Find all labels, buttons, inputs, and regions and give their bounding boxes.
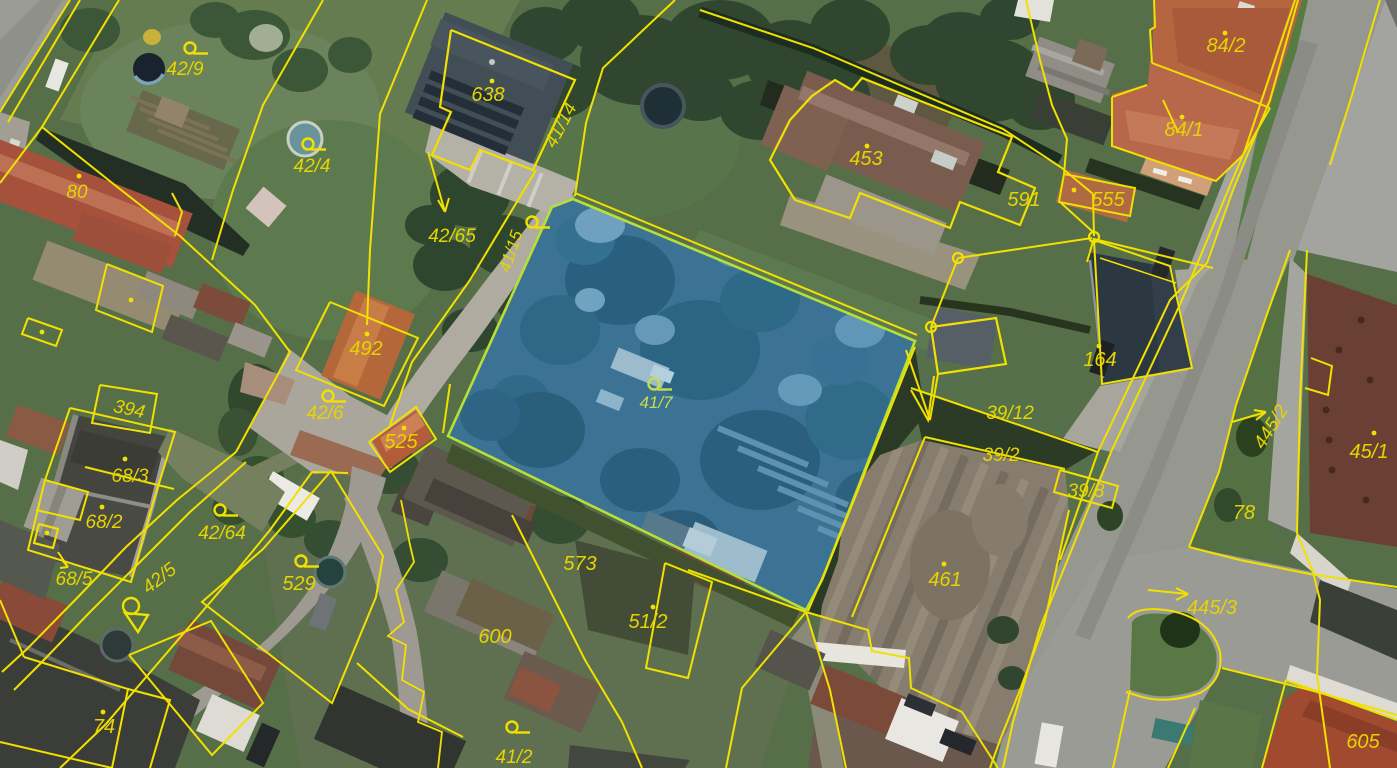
- svg-text:164: 164: [1083, 349, 1116, 371]
- svg-text:51/2: 51/2: [629, 611, 668, 633]
- svg-text:453: 453: [849, 148, 882, 170]
- svg-text:80: 80: [66, 182, 88, 203]
- svg-text:492: 492: [349, 338, 382, 360]
- svg-text:84/2: 84/2: [1207, 35, 1246, 57]
- svg-text:600: 600: [478, 626, 511, 648]
- svg-text:573: 573: [563, 553, 596, 575]
- svg-text:42/4: 42/4: [294, 156, 331, 177]
- svg-text:529: 529: [282, 573, 315, 595]
- svg-text:461: 461: [928, 569, 961, 591]
- svg-text:78: 78: [1233, 502, 1255, 524]
- svg-text:68/3: 68/3: [112, 466, 149, 487]
- svg-text:84/1: 84/1: [1165, 119, 1204, 141]
- svg-text:525: 525: [384, 431, 418, 453]
- svg-text:605: 605: [1346, 731, 1380, 753]
- svg-text:39/2: 39/2: [983, 445, 1020, 466]
- svg-text:74: 74: [93, 716, 115, 738]
- svg-text:42/9: 42/9: [167, 59, 204, 80]
- svg-text:68/2: 68/2: [86, 512, 123, 533]
- svg-text:41/2: 41/2: [496, 747, 533, 768]
- svg-text:445/3: 445/3: [1187, 597, 1237, 619]
- svg-text:638: 638: [471, 84, 504, 106]
- svg-text:591: 591: [1007, 189, 1040, 211]
- svg-text:42/6: 42/6: [307, 403, 344, 424]
- svg-text:42/65: 42/65: [428, 226, 476, 247]
- svg-text:41/7: 41/7: [639, 393, 673, 412]
- svg-text:555: 555: [1091, 189, 1125, 211]
- svg-text:39/12: 39/12: [986, 403, 1034, 424]
- svg-text:39/8: 39/8: [1068, 481, 1105, 502]
- svg-text:45/1: 45/1: [1350, 441, 1389, 463]
- svg-text:68/5: 68/5: [56, 569, 93, 590]
- svg-text:42/64: 42/64: [198, 523, 246, 544]
